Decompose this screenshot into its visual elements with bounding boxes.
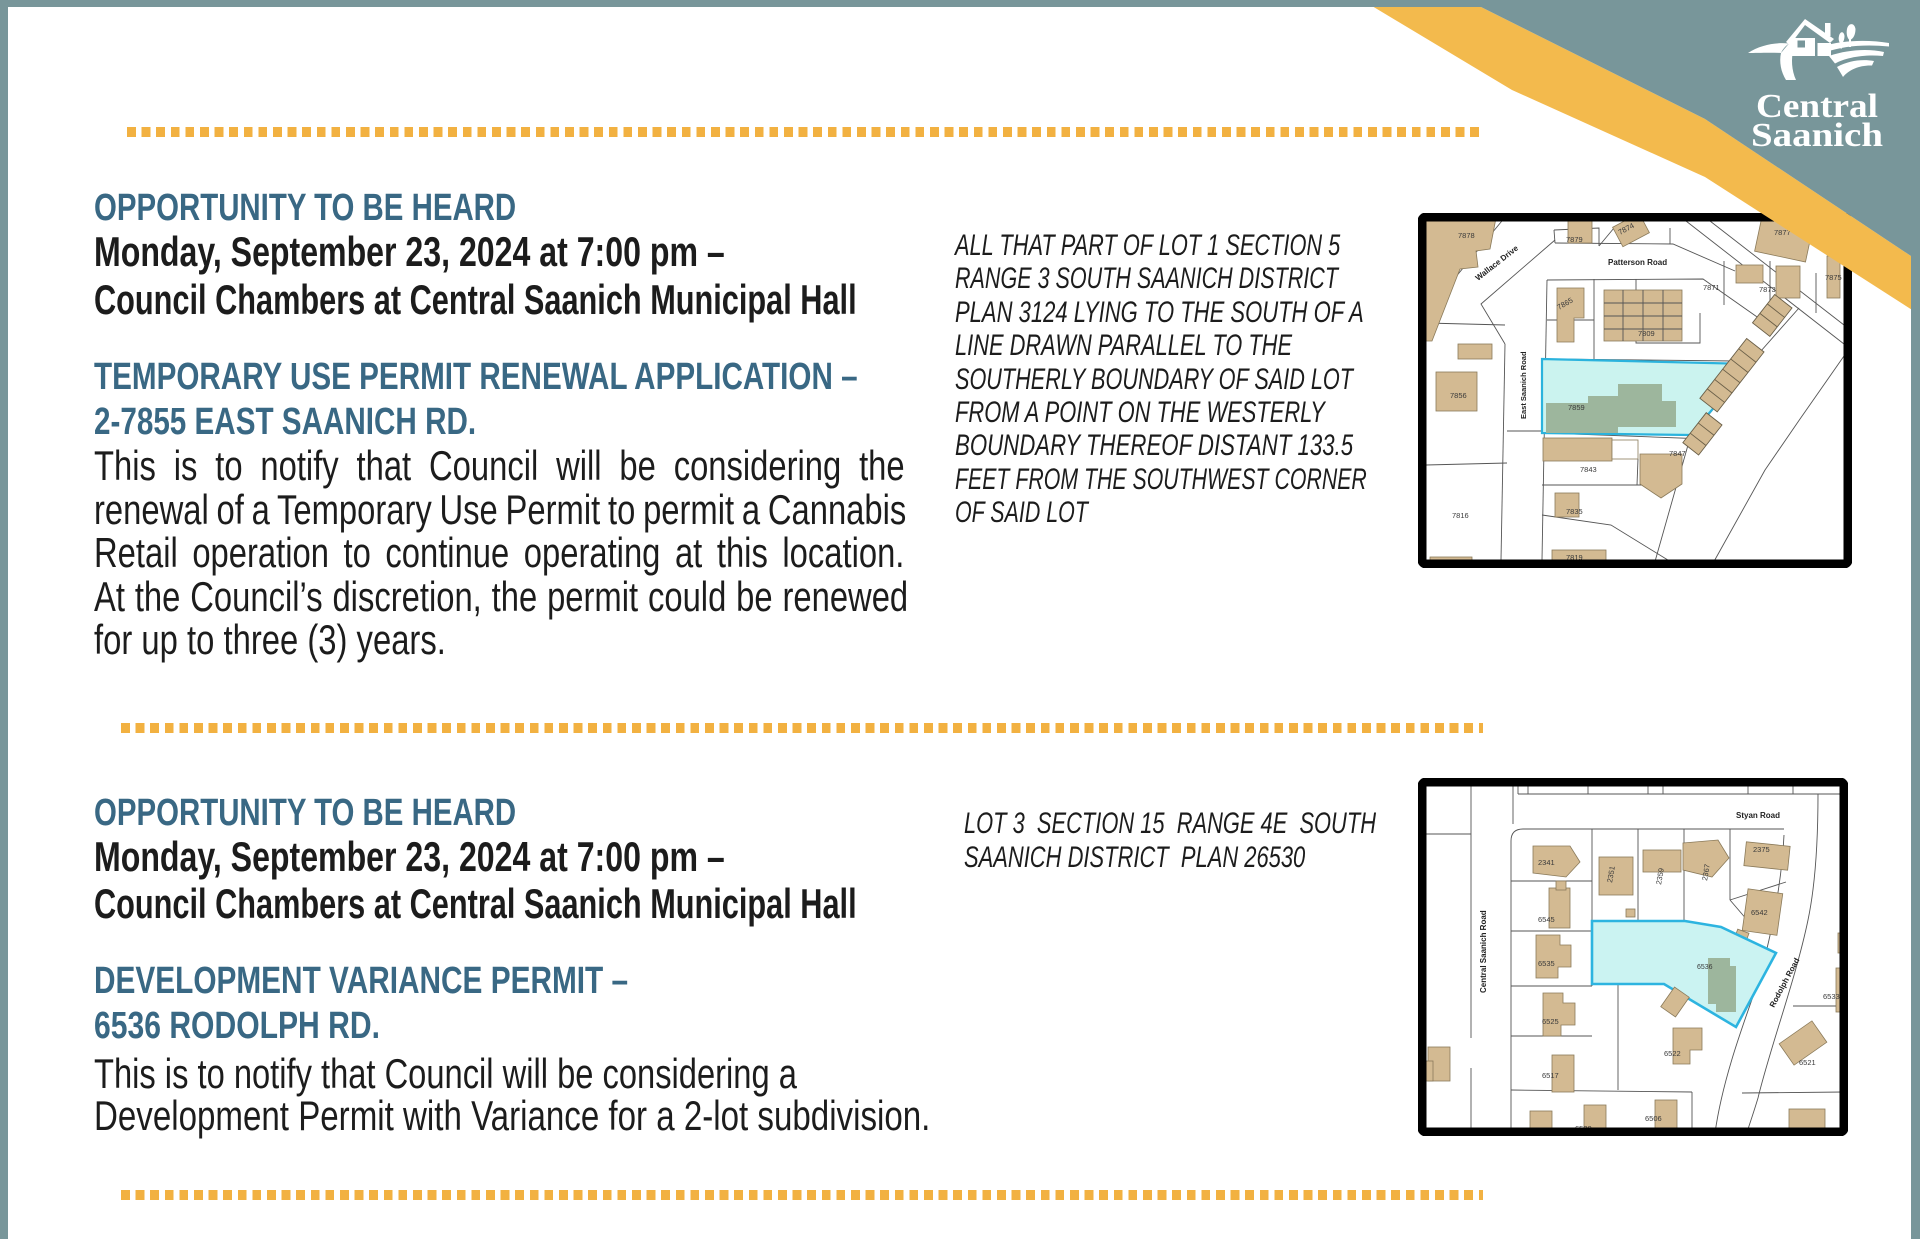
svg-text:2341: 2341 [1538, 858, 1555, 867]
svg-text:6521: 6521 [1799, 1058, 1816, 1067]
svg-text:2359: 2359 [1654, 867, 1666, 885]
svg-text:6517: 6517 [1542, 1071, 1559, 1080]
svg-text:7835: 7835 [1566, 507, 1583, 516]
svg-text:2367: 2367 [1700, 863, 1712, 881]
svg-text:6533: 6533 [1823, 992, 1840, 1001]
svg-text:2375: 2375 [1753, 845, 1770, 854]
svg-text:Rodolph Road: Rodolph Road [1768, 956, 1802, 1009]
svg-text:7816: 7816 [1452, 511, 1469, 520]
svg-text:6525: 6525 [1542, 1017, 1559, 1026]
svg-text:6542: 6542 [1751, 908, 1768, 917]
svg-text:Styan Road: Styan Road [1736, 811, 1780, 820]
svg-text:6545: 6545 [1538, 915, 1555, 924]
svg-text:7847: 7847 [1669, 449, 1686, 458]
svg-text:7843: 7843 [1580, 465, 1597, 474]
svg-text:6506: 6506 [1645, 1114, 1662, 1123]
svg-text:6536: 6536 [1697, 964, 1713, 971]
svg-text:Central Saanich Road: Central Saanich Road [1479, 910, 1488, 993]
svg-text:6535: 6535 [1538, 959, 1555, 968]
svg-text:6522: 6522 [1664, 1049, 1681, 1058]
